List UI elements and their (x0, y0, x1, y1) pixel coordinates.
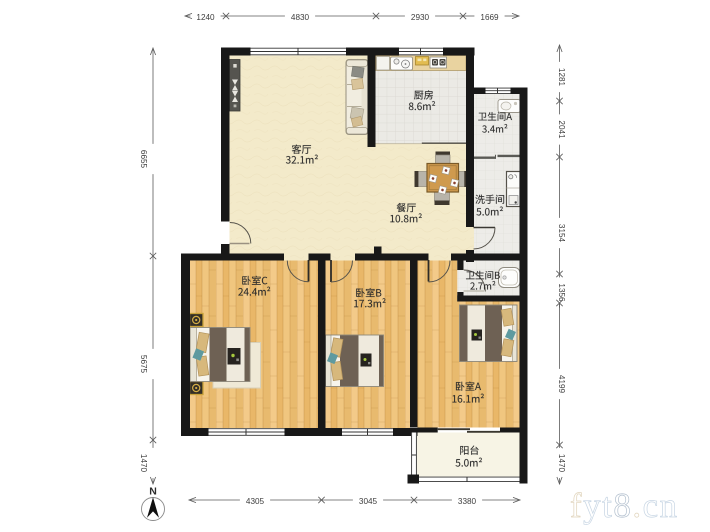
svg-text:5675: 5675 (139, 355, 148, 374)
svg-text:3045: 3045 (359, 497, 378, 506)
svg-text:6655: 6655 (139, 150, 148, 169)
svg-text:4305: 4305 (246, 497, 265, 506)
svg-text:1669: 1669 (480, 13, 499, 22)
svg-text:1470: 1470 (139, 454, 148, 473)
svg-text:1240: 1240 (196, 13, 215, 22)
svg-text:4830: 4830 (291, 13, 310, 22)
svg-text:N: N (149, 486, 157, 498)
svg-text:1281: 1281 (557, 68, 566, 87)
svg-text:3154: 3154 (557, 224, 566, 243)
svg-text:1356: 1356 (557, 283, 566, 302)
svg-text:2930: 2930 (411, 13, 430, 22)
svg-text:fyt8.cn: fyt8.cn (570, 486, 679, 525)
svg-text:1470: 1470 (557, 454, 566, 473)
svg-text:3380: 3380 (458, 497, 477, 506)
svg-text:2041: 2041 (557, 120, 566, 139)
svg-text:4199: 4199 (557, 375, 566, 394)
